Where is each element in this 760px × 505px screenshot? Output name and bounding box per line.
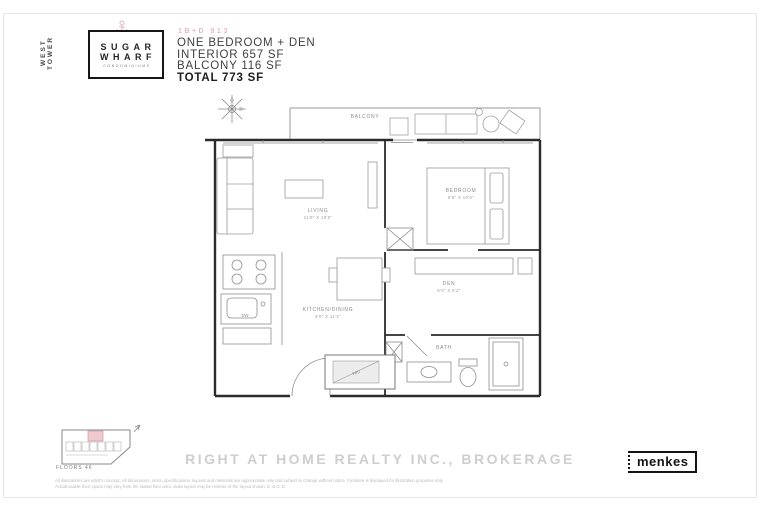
den-label: DEN [443, 281, 456, 287]
balcony-area: BALCONY 116 SF [177, 61, 316, 73]
bathroom-fixtures [407, 336, 523, 390]
sugar-wharf-logo: SUGAR WHARF CONDOMINIUMS [88, 30, 164, 79]
menkes-logo: menkes [628, 451, 697, 473]
brokerage-watermark: RIGHT AT HOME REALTY INC., BROKERAGE [160, 451, 600, 467]
floor-plan: BALCONY [193, 88, 548, 408]
title-block: ONE BEDROOM + DEN INTERIOR 657 SF BALCON… [177, 38, 316, 84]
plan-code: 1B+D 913 [178, 28, 230, 35]
den-dims: 6'0" X 8'2" [437, 288, 461, 293]
bedroom-closet [387, 228, 413, 250]
bedroom-furniture [368, 162, 509, 244]
logo-line1: SUGAR [100, 42, 155, 52]
bath-label: BATH [436, 345, 452, 351]
kitchen-label: KITCHEN/DINING [303, 307, 354, 313]
laundry-closet: W/D [325, 355, 395, 389]
tower-label: WEST TOWER [40, 24, 54, 82]
den-furniture [415, 258, 532, 274]
dining-table [329, 258, 390, 300]
living-dims: 11'6" X 10'6" [304, 215, 333, 220]
bedroom-label: BEDROOM [446, 188, 477, 194]
dishwasher-label: DW [242, 313, 249, 318]
kitchen-dims: 9'0" X 11'3" [315, 314, 341, 319]
kitchen-appliances [221, 252, 282, 345]
balcony-label: BALCONY [351, 114, 380, 120]
logo-line3: CONDOMINIUMS [103, 64, 150, 68]
compass-icon [218, 95, 246, 123]
disclaimer-line-1: All illustrations are artist's concept. … [55, 478, 707, 484]
living-label: LIVING [308, 208, 329, 214]
balcony-furniture [390, 109, 525, 136]
logo-line2: WHARF [100, 52, 156, 62]
entry-door [292, 358, 330, 396]
total-area: TOTAL 773 SF [177, 73, 316, 85]
north-arrow-icon [134, 425, 140, 432]
floorplan-sheet: WEST TOWER SUGAR WHARF CONDOMINIUMS 1B+D… [0, 0, 760, 505]
disclaimer-line-2: Actual usable floor space may vary from … [55, 484, 707, 490]
living-furniture [217, 145, 323, 234]
highlighted-unit [88, 431, 103, 441]
bedroom-dims: 9'6" X 10'6" [448, 195, 474, 200]
unit-type: ONE BEDROOM + DEN [177, 38, 316, 50]
floors-label: FLOORS 46 [56, 465, 93, 471]
